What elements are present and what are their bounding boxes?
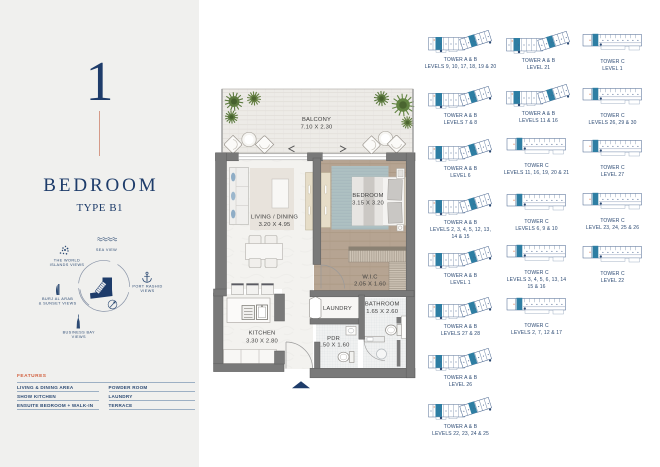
svg-text:3.20 X 4.95: 3.20 X 4.95 [259,222,291,228]
svg-text:1.65 X 2.60: 1.65 X 2.60 [366,309,398,315]
svg-text:PDR: PDR [327,336,340,342]
svg-text:3.15 X 3.20: 3.15 X 3.20 [352,201,384,207]
svg-text:BEDROOM: BEDROOM [352,193,383,199]
svg-text:KITCHEN: KITCHEN [249,331,276,337]
svg-text:BATHROOM: BATHROOM [365,302,400,308]
svg-text:1.50 X 1.60: 1.50 X 1.60 [318,342,350,348]
svg-text:VIEWS: VIEWS [140,289,154,293]
svg-text:BUSINESS BAY: BUSINESS BAY [63,331,95,335]
svg-text:& SUNSET VIEWS: & SUNSET VIEWS [39,302,77,306]
svg-text:3.30 X 2.80: 3.30 X 2.80 [246,338,278,344]
svg-text:SEA VIEW: SEA VIEW [96,248,117,252]
svg-text:VIEWS: VIEWS [72,335,86,339]
svg-text:BURJ AL ARAB: BURJ AL ARAB [42,297,73,301]
svg-text:ISLANDS VIEWS: ISLANDS VIEWS [50,263,85,267]
svg-text:THE WORLD: THE WORLD [54,259,80,263]
svg-text:LAUNDRY: LAUNDRY [323,306,352,312]
svg-text:LIVING / DINING: LIVING / DINING [251,215,298,221]
svg-text:PORT RASHID: PORT RASHID [132,285,162,289]
svg-text:W.I.C: W.I.C [362,275,377,281]
svg-text:7.10 X 2.30: 7.10 X 2.30 [301,125,333,131]
svg-text:2.05 X 1.60: 2.05 X 1.60 [354,282,386,288]
svg-text:BALCONY: BALCONY [302,117,331,123]
